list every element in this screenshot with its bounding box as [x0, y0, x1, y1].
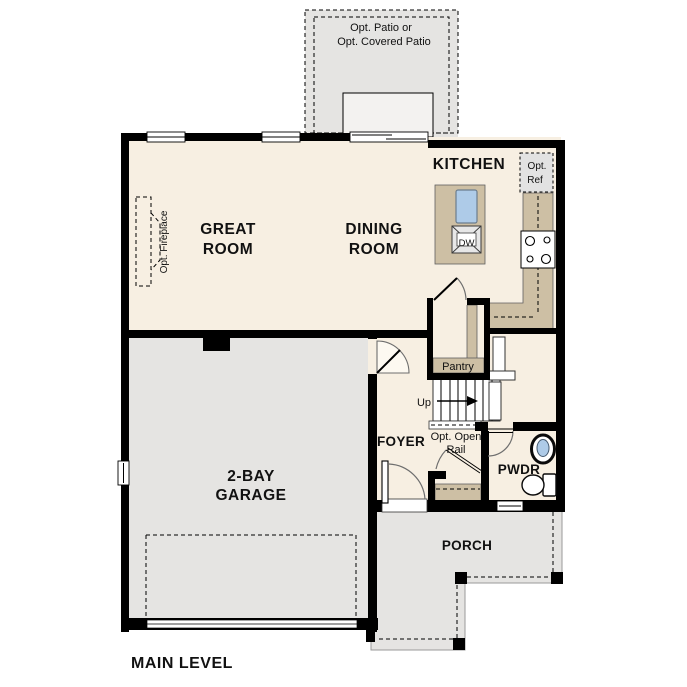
garage-label: GARAGE — [215, 487, 286, 504]
porch-post — [551, 572, 563, 584]
garage-door-opening — [368, 339, 377, 374]
closet-shelf — [435, 484, 481, 501]
dining-room-label: DINING — [345, 221, 402, 238]
range — [521, 231, 555, 268]
great-room-label: ROOM — [203, 241, 253, 258]
wall-stub — [203, 338, 230, 351]
dishwasher-label: DW — [459, 238, 475, 249]
stair-rail — [493, 337, 505, 371]
patio-label: Opt. Covered Patio — [337, 36, 431, 48]
floor-plan: Opt. Patio or Opt. Covered Patio KITCHEN… — [0, 0, 687, 687]
floor-plan-svg: Opt. Patio or Opt. Covered Patio KITCHEN… — [0, 0, 687, 687]
toilet-bowl — [522, 475, 544, 495]
kitchen-sink — [456, 190, 477, 223]
front-door-threshold — [382, 499, 427, 512]
patio-label: Opt. Patio or — [350, 22, 412, 34]
fireplace-label: Opt. Fireplace — [159, 210, 170, 273]
open-rail-label: Rail — [447, 444, 466, 456]
great-room-label: GREAT — [200, 221, 256, 238]
foyer-label: FOYER — [377, 434, 425, 449]
pantry-label: Pantry — [442, 361, 474, 373]
opt-ref-label: Opt. — [528, 161, 547, 172]
dining-room-label: ROOM — [349, 241, 399, 258]
opt-refrigerator — [520, 153, 553, 192]
front-door-leaf — [382, 461, 388, 503]
stair-rail — [489, 382, 501, 420]
opt-ref-label: Ref — [527, 175, 543, 186]
toilet-tank — [543, 474, 556, 496]
pwdr-label: PWDR — [498, 462, 540, 477]
garage-label: 2-BAY — [227, 468, 275, 485]
pantry-door-opening — [433, 298, 467, 305]
open-rail-label: Opt. Open — [431, 431, 482, 443]
porch-post — [455, 572, 467, 584]
sliding-glass-door — [350, 132, 428, 142]
stair-rail — [489, 371, 515, 380]
kitchen-label: KITCHEN — [433, 156, 505, 173]
patio-step — [343, 93, 433, 137]
powder-door-opening — [488, 422, 513, 431]
porch-label: PORCH — [442, 538, 492, 553]
kitchen-island — [435, 185, 485, 264]
sink-basin — [537, 440, 549, 457]
porch-post — [453, 638, 465, 650]
up-label: Up — [417, 397, 431, 409]
plan-title: MAIN LEVEL — [131, 655, 233, 672]
